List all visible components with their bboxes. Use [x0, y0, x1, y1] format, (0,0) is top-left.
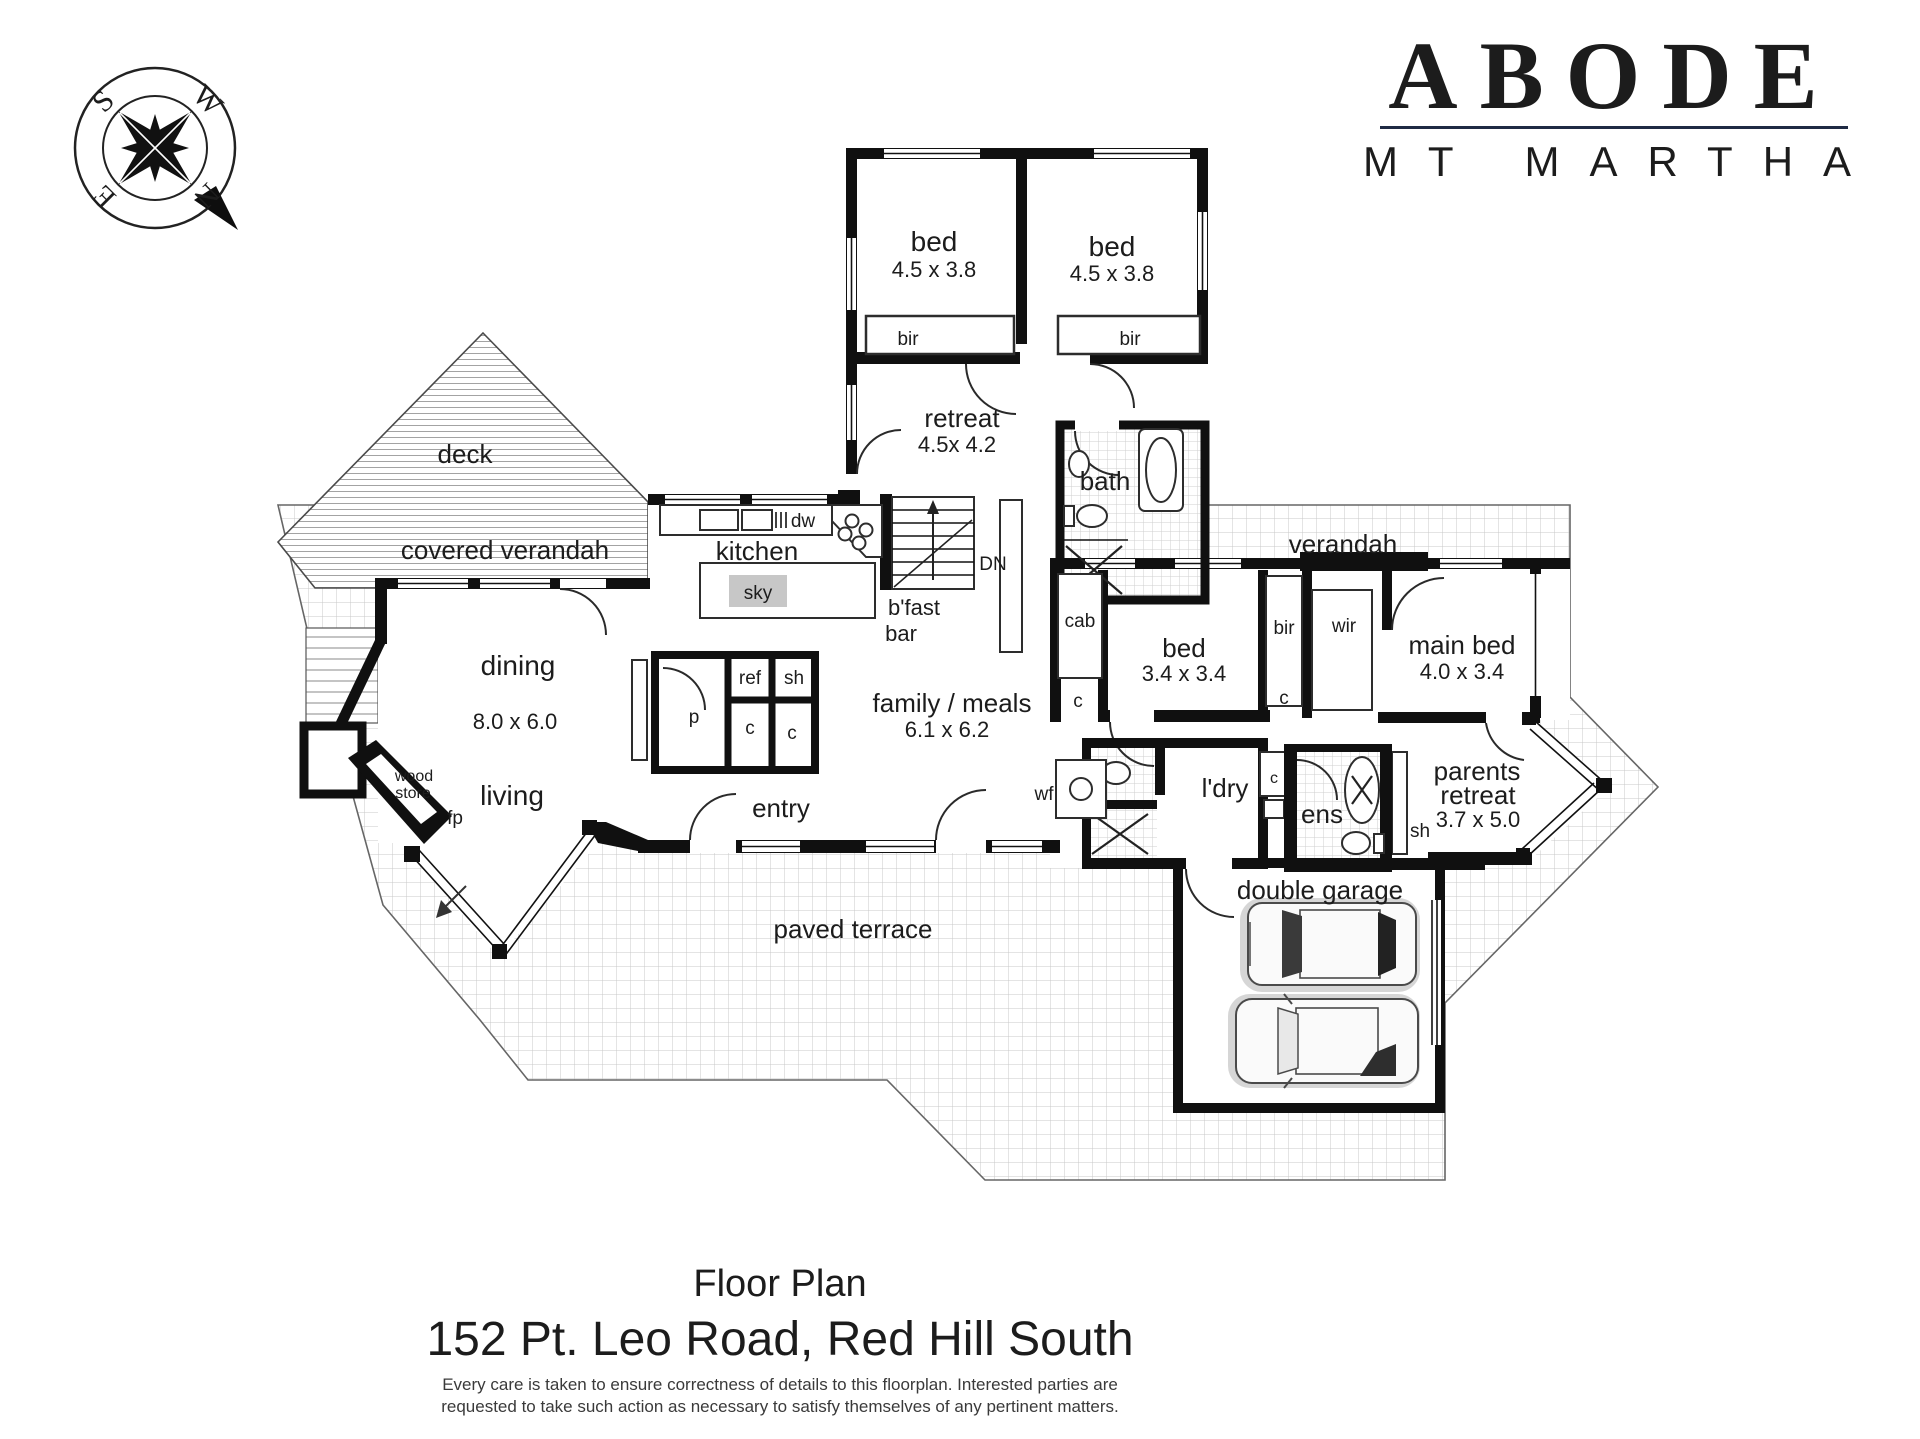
label-dining: dining — [481, 650, 556, 681]
label-ref: ref — [739, 668, 762, 689]
footer-disclaimer-2: requested to take such action as necessa… — [441, 1397, 1119, 1416]
label-entry: entry — [752, 793, 810, 823]
label-kitchen: kitchen — [716, 536, 798, 566]
label-c1: c — [745, 718, 755, 739]
label-dining-dims: 8.0 x 6.0 — [473, 709, 557, 734]
label-wood: wood — [394, 768, 433, 785]
floorplan-page: S W E N ABODE MT MARTHA — [0, 0, 1920, 1439]
car-2 — [1228, 994, 1420, 1088]
kitchen-sink — [700, 510, 738, 530]
label-covered-verandah: covered verandah — [401, 535, 609, 565]
breakfast-bar — [1000, 500, 1022, 652]
kitchen-island — [700, 563, 875, 618]
label-bed2: bed — [1089, 231, 1136, 262]
floorplan-canvas: S W E N ABODE MT MARTHA — [0, 0, 1920, 1439]
label-bfast: b'fast — [888, 595, 940, 620]
label-wf: wf — [1034, 784, 1055, 805]
label-bir3: bir — [1273, 618, 1295, 639]
bir-closet — [1266, 576, 1302, 706]
brand-underline — [1380, 126, 1848, 129]
label-retreat-dims: 4.5x 4.2 — [918, 432, 996, 457]
label-cab: cab — [1065, 611, 1096, 632]
label-living: living — [480, 780, 544, 811]
label-verandah: verandah — [1289, 529, 1397, 559]
label-wir: wir — [1331, 616, 1357, 637]
label-deck: deck — [438, 439, 494, 469]
label-main-bed: main bed — [1409, 630, 1516, 660]
label-c4: c — [1279, 688, 1289, 709]
label-pantry: p — [689, 707, 700, 728]
label-dw: dw — [791, 511, 816, 532]
label-sh-shower: sh — [1410, 821, 1430, 842]
label-c5: c — [1270, 770, 1278, 787]
label-paved-terrace: paved terrace — [774, 914, 933, 944]
label-retreat: retreat — [924, 403, 1000, 433]
label-family-dims: 6.1 x 6.2 — [905, 717, 989, 742]
label-main-bed-dims: 4.0 x 3.4 — [1420, 659, 1504, 684]
label-parents-retreat: retreat — [1440, 780, 1516, 810]
label-dn: DN — [979, 554, 1006, 575]
label-bed3: bed — [1162, 633, 1205, 663]
label-bed2-dims: 4.5 x 3.8 — [1070, 261, 1154, 286]
label-bir2: bir — [1119, 329, 1141, 350]
brand-logo: ABODE MT MARTHA — [1363, 22, 1881, 185]
footer-disclaimer-1: Every care is taken to ensure correctnes… — [442, 1375, 1118, 1394]
label-parents-dims: 3.7 x 5.0 — [1436, 807, 1520, 832]
label-c2: c — [787, 723, 797, 744]
label-bed3-dims: 3.4 x 3.4 — [1142, 661, 1226, 686]
label-fp: fp — [447, 808, 463, 829]
brand-name: ABODE — [1388, 22, 1839, 129]
label-bed1-dims: 4.5 x 3.8 — [892, 257, 976, 282]
label-ens: ens — [1301, 799, 1343, 829]
label-family: family / meals — [873, 688, 1032, 718]
stairs — [892, 497, 974, 589]
wir-closet — [1312, 590, 1372, 710]
label-double-garage: double garage — [1237, 875, 1403, 905]
label-c3: c — [1073, 691, 1083, 712]
label-bir1: bir — [897, 329, 919, 350]
label-ldry: l'dry — [1202, 773, 1249, 803]
label-bed1: bed — [911, 226, 958, 257]
toilet — [1077, 505, 1107, 527]
car-1 — [1240, 898, 1420, 992]
label-sh-cupboard: sh — [784, 668, 804, 689]
footer-title: Floor Plan — [693, 1263, 866, 1305]
label-sky: sky — [744, 583, 773, 604]
brand-location: MT MARTHA — [1363, 138, 1881, 185]
label-store: store — [395, 785, 431, 802]
label-bath: bath — [1080, 466, 1131, 496]
footer-address: 152 Pt. Leo Road, Red Hill South — [426, 1313, 1133, 1366]
label-bar: bar — [885, 621, 917, 646]
